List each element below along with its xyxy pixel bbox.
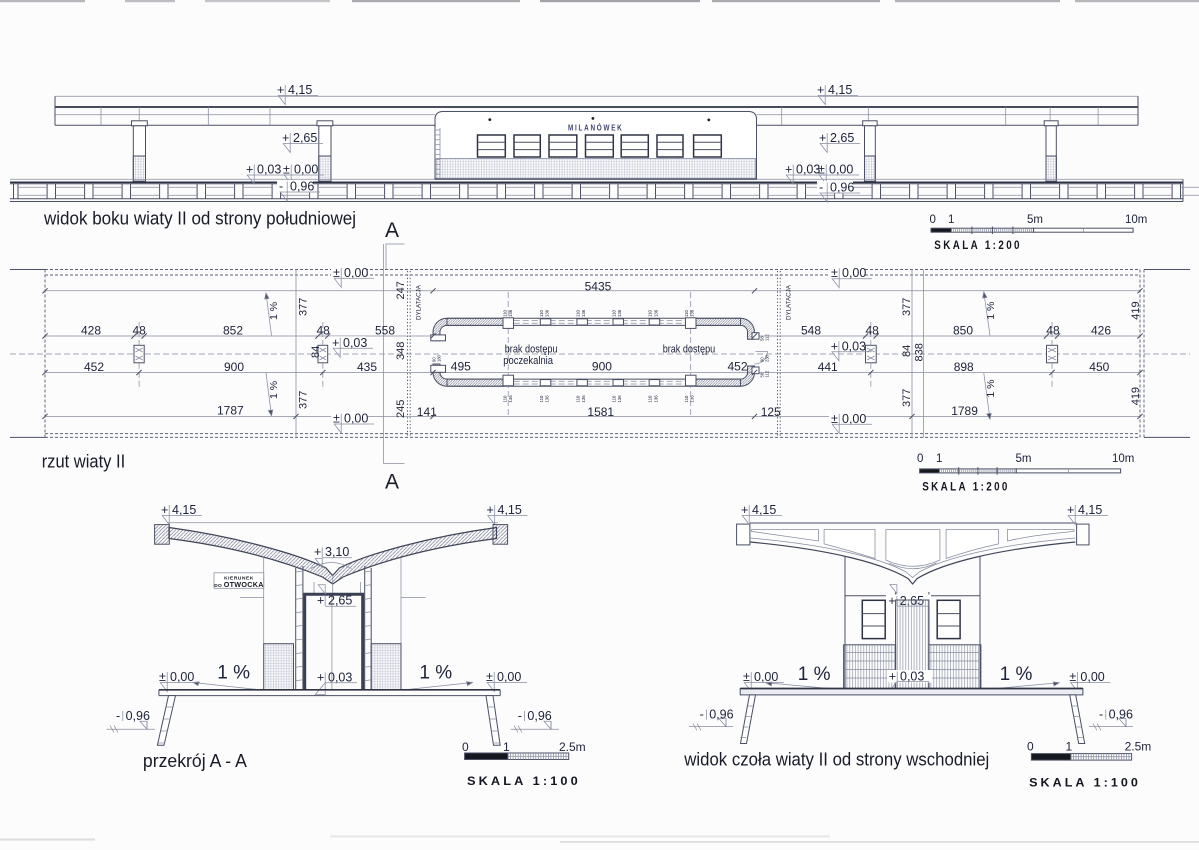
svg-text:0,00: 0,00 — [170, 670, 194, 684]
svg-text:brak dostępu: brak dostępu — [663, 344, 716, 356]
svg-text:10m: 10m — [1112, 453, 1134, 465]
svg-text:+: + — [889, 669, 896, 683]
svg-text:0,00: 0,00 — [344, 266, 368, 280]
svg-text:2.5m: 2.5m — [559, 740, 586, 754]
svg-text:377: 377 — [298, 391, 310, 409]
svg-text:247: 247 — [395, 281, 407, 299]
svg-text:+: + — [741, 503, 748, 517]
svg-text:112: 112 — [765, 334, 770, 341]
svg-text:136: 136 — [653, 395, 658, 403]
svg-text:4,15: 4,15 — [828, 83, 852, 97]
svg-text:377: 377 — [901, 389, 913, 407]
svg-text:DYLATACJA: DYLATACJA — [416, 284, 423, 320]
svg-text:0,03: 0,03 — [900, 669, 924, 683]
svg-text:±: ± — [743, 670, 750, 684]
svg-text:84: 84 — [901, 345, 913, 357]
svg-text:SKALA 1:200: SKALA 1:200 — [922, 481, 1010, 493]
svg-text:SKALA 1:100: SKALA 1:100 — [467, 776, 581, 788]
svg-text:0: 0 — [1027, 740, 1034, 754]
svg-text:136: 136 — [581, 309, 586, 317]
svg-text:110: 110 — [612, 310, 617, 317]
svg-text:0,03: 0,03 — [343, 336, 367, 350]
svg-text:1 %: 1 % — [1000, 664, 1033, 685]
svg-text:419: 419 — [1130, 301, 1142, 319]
svg-text:136: 136 — [581, 395, 586, 403]
svg-text:4,15: 4,15 — [288, 83, 312, 97]
svg-text:4,15: 4,15 — [498, 503, 522, 517]
svg-text:0,00: 0,00 — [344, 412, 368, 426]
svg-text:1 %: 1 % — [268, 302, 280, 320]
svg-text:125: 125 — [761, 405, 781, 419]
svg-text:-: - — [279, 180, 283, 194]
svg-text:110: 110 — [575, 310, 580, 317]
svg-text:+: + — [317, 671, 324, 685]
svg-text:838: 838 — [914, 343, 926, 361]
svg-text:136: 136 — [653, 309, 658, 317]
svg-text:348: 348 — [395, 342, 407, 360]
svg-text:0,00: 0,00 — [842, 412, 866, 426]
svg-text:452: 452 — [84, 360, 104, 374]
svg-text:110: 110 — [648, 395, 653, 402]
svg-text:0,00: 0,00 — [829, 163, 853, 177]
svg-text:0,00: 0,00 — [842, 266, 866, 280]
svg-text:1581: 1581 — [587, 405, 614, 419]
svg-text:110: 110 — [612, 395, 617, 402]
svg-text:±: ± — [831, 412, 838, 426]
svg-text:1: 1 — [936, 453, 942, 465]
svg-text:136: 136 — [508, 309, 513, 317]
svg-text:2,65: 2,65 — [328, 594, 352, 608]
svg-text:2,65: 2,65 — [293, 131, 317, 145]
svg-text:0: 0 — [930, 214, 936, 226]
svg-text:230: 230 — [765, 354, 770, 362]
svg-text:84: 84 — [310, 346, 322, 358]
svg-text:426: 426 — [1091, 323, 1111, 337]
svg-text:0,00: 0,00 — [497, 670, 521, 684]
svg-text:245: 245 — [395, 400, 407, 418]
svg-text:+: + — [277, 83, 284, 97]
svg-text:rzut wiaty II: rzut wiaty II — [42, 452, 126, 472]
svg-text:0,96: 0,96 — [1109, 707, 1133, 721]
svg-text:377: 377 — [298, 298, 310, 316]
svg-text:0,96: 0,96 — [527, 709, 551, 723]
svg-text:brak dostępu: brak dostępu — [505, 344, 558, 356]
svg-text:898: 898 — [954, 360, 974, 374]
svg-text:-: - — [700, 707, 704, 721]
svg-text:-: - — [1099, 707, 1103, 721]
svg-text:2,65: 2,65 — [830, 131, 854, 145]
svg-text:0,03: 0,03 — [796, 163, 820, 177]
svg-text:1789: 1789 — [951, 404, 978, 418]
svg-text:1787: 1787 — [217, 403, 244, 417]
svg-text:1 %: 1 % — [985, 302, 997, 320]
svg-text:1: 1 — [948, 214, 954, 226]
svg-text:136: 136 — [617, 395, 622, 403]
svg-text:110: 110 — [684, 395, 689, 402]
svg-text:110: 110 — [684, 310, 689, 317]
svg-text:+: + — [785, 163, 792, 177]
svg-text:0,03: 0,03 — [842, 339, 866, 353]
svg-text:0,03: 0,03 — [257, 163, 281, 177]
svg-text:110: 110 — [648, 310, 653, 317]
svg-text:548: 548 — [801, 323, 821, 337]
svg-text:136: 136 — [690, 309, 695, 317]
svg-text:±: ± — [818, 163, 825, 177]
svg-text:widok czoła wiaty II od strony: widok czoła wiaty II od strony wschodnie… — [683, 750, 989, 770]
svg-text:136: 136 — [617, 309, 622, 317]
svg-text:MILANÓWEK: MILANÓWEK — [568, 124, 624, 133]
svg-text:0,96: 0,96 — [830, 181, 854, 195]
svg-text:110: 110 — [503, 395, 508, 402]
svg-text:+: + — [317, 594, 324, 608]
svg-text:495: 495 — [451, 360, 471, 374]
svg-text:852: 852 — [223, 323, 243, 337]
svg-text:110: 110 — [539, 310, 544, 317]
svg-text:1: 1 — [1066, 740, 1073, 754]
svg-text:przekrój A - A: przekrój A - A — [143, 751, 247, 771]
svg-text:10m: 10m — [1125, 214, 1147, 226]
svg-text:136: 136 — [508, 395, 513, 403]
svg-text:0,00: 0,00 — [754, 670, 778, 684]
svg-text:1 %: 1 % — [419, 663, 452, 684]
svg-text:widok boku wiaty II od strony: widok boku wiaty II od strony południowe… — [43, 209, 356, 229]
svg-text:428: 428 — [81, 323, 101, 337]
svg-text:850: 850 — [953, 323, 973, 337]
svg-text:SKALA 1:200: SKALA 1:200 — [934, 240, 1022, 252]
svg-text:0,96: 0,96 — [709, 707, 733, 721]
svg-text:+: + — [487, 503, 494, 517]
svg-text:110: 110 — [503, 310, 508, 317]
svg-text:-: - — [518, 709, 522, 723]
svg-text:+: + — [282, 131, 289, 145]
svg-text:0: 0 — [462, 740, 469, 754]
svg-text:180: 180 — [437, 354, 442, 362]
svg-text:+: + — [1067, 503, 1074, 517]
svg-text:110: 110 — [539, 395, 544, 402]
svg-text:-: - — [819, 181, 823, 195]
svg-text:136: 136 — [690, 395, 695, 403]
svg-text:4,15: 4,15 — [752, 503, 776, 517]
svg-text:+: + — [332, 336, 339, 350]
svg-text:1: 1 — [503, 740, 510, 754]
svg-text:558: 558 — [375, 323, 395, 337]
svg-text:1 %: 1 % — [217, 663, 250, 684]
svg-text:377: 377 — [901, 298, 913, 316]
svg-text:+: + — [817, 83, 824, 97]
svg-text:0,00: 0,00 — [294, 163, 318, 177]
svg-text:5435: 5435 — [585, 279, 612, 293]
svg-text:112: 112 — [765, 370, 770, 377]
svg-text:1 %: 1 % — [798, 664, 831, 685]
svg-text:SKALA 1:100: SKALA 1:100 — [1029, 778, 1141, 790]
svg-text:±: ± — [486, 670, 493, 684]
svg-text:1 %: 1 % — [985, 380, 997, 398]
svg-text:+: + — [246, 163, 253, 177]
svg-text:0,00: 0,00 — [1080, 670, 1104, 684]
svg-text:±: ± — [283, 163, 290, 177]
svg-text:4,15: 4,15 — [172, 503, 196, 517]
svg-text:5m: 5m — [1027, 214, 1043, 226]
svg-text:900: 900 — [592, 360, 612, 374]
svg-text:136: 136 — [544, 309, 549, 317]
svg-text:441: 441 — [818, 360, 838, 374]
svg-text:0,96: 0,96 — [126, 709, 150, 723]
svg-text:3,10: 3,10 — [325, 545, 349, 559]
svg-text:4,15: 4,15 — [1078, 503, 1102, 517]
svg-text:+: + — [888, 594, 895, 608]
svg-text:1 %: 1 % — [268, 381, 280, 399]
svg-text:+: + — [831, 339, 838, 353]
svg-text:A: A — [385, 219, 399, 242]
svg-text:+: + — [161, 503, 168, 517]
svg-text:435: 435 — [357, 360, 377, 374]
svg-text:419: 419 — [1130, 387, 1142, 405]
svg-text:±: ± — [333, 266, 340, 280]
svg-text:110: 110 — [575, 395, 580, 402]
svg-text:0: 0 — [917, 453, 923, 465]
svg-text:-: - — [116, 709, 120, 723]
svg-text:±: ± — [831, 266, 838, 280]
svg-text:2.5m: 2.5m — [1125, 740, 1152, 754]
svg-text:450: 450 — [1089, 360, 1109, 374]
svg-text:141: 141 — [417, 405, 437, 419]
svg-text:+: + — [819, 131, 826, 145]
svg-text:900: 900 — [224, 360, 244, 374]
svg-text:5m: 5m — [1016, 453, 1032, 465]
svg-text:±: ± — [159, 670, 166, 684]
svg-text:A: A — [385, 471, 399, 494]
svg-text:±: ± — [333, 412, 340, 426]
svg-text:poczekalnia: poczekalnia — [503, 355, 553, 367]
svg-text:452: 452 — [728, 360, 748, 374]
svg-text:+: + — [314, 545, 321, 559]
svg-text:±: ± — [1069, 670, 1076, 684]
svg-text:136: 136 — [544, 395, 549, 403]
svg-text:DYLATACJA: DYLATACJA — [786, 284, 793, 320]
svg-text:0,96: 0,96 — [290, 180, 314, 194]
